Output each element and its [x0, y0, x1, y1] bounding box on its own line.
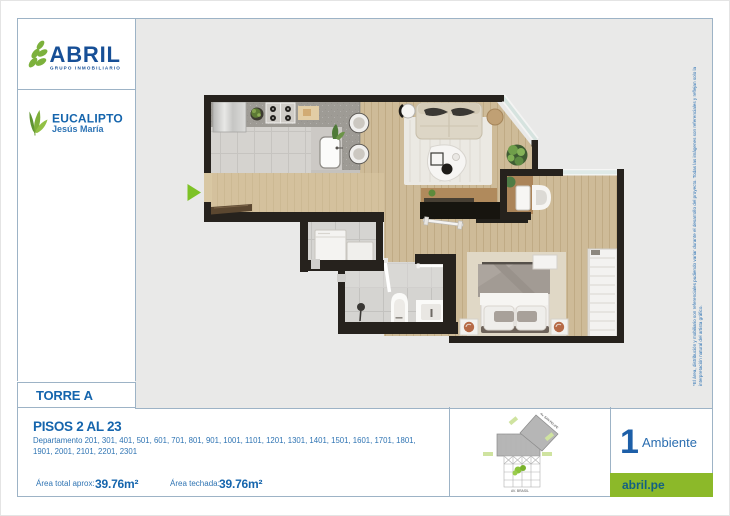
svg-text:GRUPO INMOBILIARIO: GRUPO INMOBILIARIO: [50, 66, 121, 71]
svg-text:ABRIL: ABRIL: [50, 42, 121, 67]
svg-text:AV. BRASIL: AV. BRASIL: [511, 489, 529, 493]
svg-text:Jesús María: Jesús María: [52, 124, 105, 134]
